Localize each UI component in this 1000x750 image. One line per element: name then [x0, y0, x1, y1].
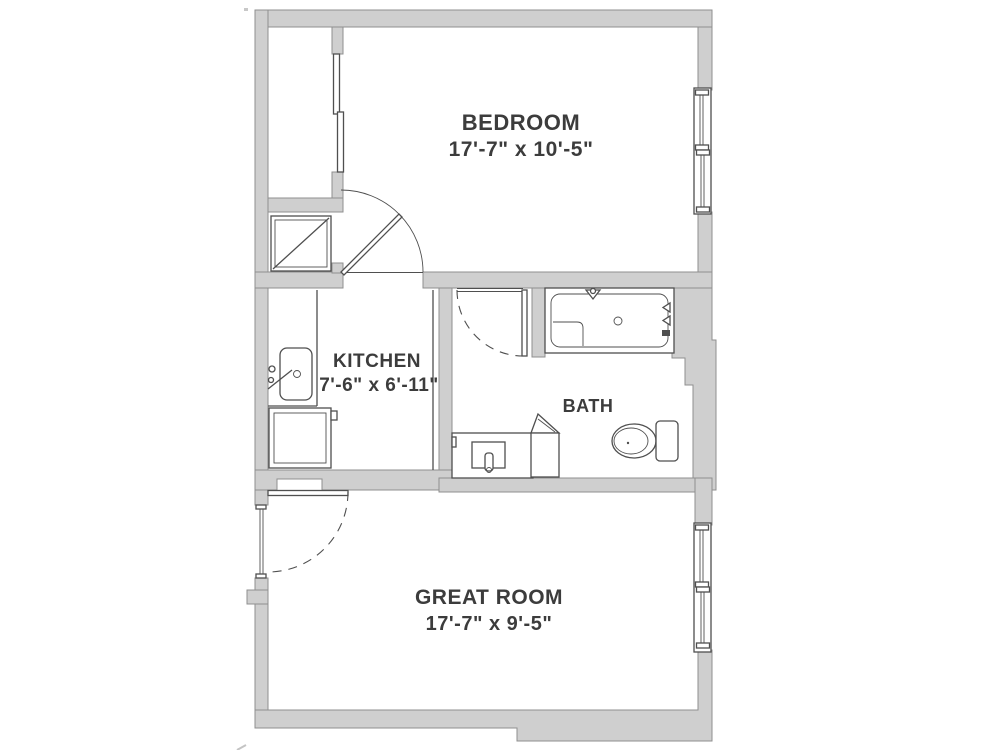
- wall-kitchen-top: [255, 272, 343, 288]
- wall-bath-bottom: [439, 478, 712, 492]
- bathtub-shower: [545, 288, 674, 353]
- range: [269, 408, 337, 468]
- great-room-window: [694, 523, 711, 652]
- washer-dryer: [271, 216, 331, 271]
- room-dimensions-kitchen: 7'-6" x 6'-11": [319, 375, 439, 396]
- floor-plan-canvas: BEDROOM 17'-7" x 10'-5" KITCHEN 7'-6" x …: [0, 0, 1000, 750]
- wall-closet-divider-bottom: [332, 172, 343, 198]
- wall-right-bedroom-lower: [698, 212, 712, 273]
- wall-tub-stub: [532, 288, 545, 357]
- wall-top: [255, 10, 712, 27]
- wall-left-lower: [255, 604, 268, 712]
- floor-plan-drawing: BEDROOM 17'-7" x 10'-5" KITCHEN 7'-6" x …: [0, 0, 1000, 750]
- vanity-sink: [452, 433, 533, 478]
- wall-left-bump: [247, 590, 268, 604]
- wall-closet-bottom: [268, 198, 343, 212]
- wall-right-upper: [698, 27, 712, 90]
- wall-bedroom-bottom: [423, 272, 712, 288]
- room-label-bath: BATH: [563, 396, 614, 416]
- room-label-bedroom: BEDROOM: [462, 110, 580, 135]
- stray-mark: [244, 8, 248, 11]
- toilet: [612, 421, 678, 461]
- entry-door-leaf: [268, 491, 348, 496]
- room-label-great-room: GREAT ROOM: [415, 586, 563, 609]
- room-dimensions-bedroom: 17'-7" x 10'-5": [449, 138, 594, 161]
- wall-hall: [439, 288, 452, 478]
- bedroom-window: [694, 88, 711, 214]
- bath-door-leaf: [522, 290, 527, 356]
- wall-closet-divider-top: [332, 27, 343, 54]
- room-label-kitchen: KITCHEN: [333, 351, 421, 372]
- room-dimensions-great-room: 17'-7" x 9'-5": [426, 613, 553, 635]
- wall-left-upper: [255, 10, 268, 505]
- wall-right-great-room-upper: [695, 478, 712, 525]
